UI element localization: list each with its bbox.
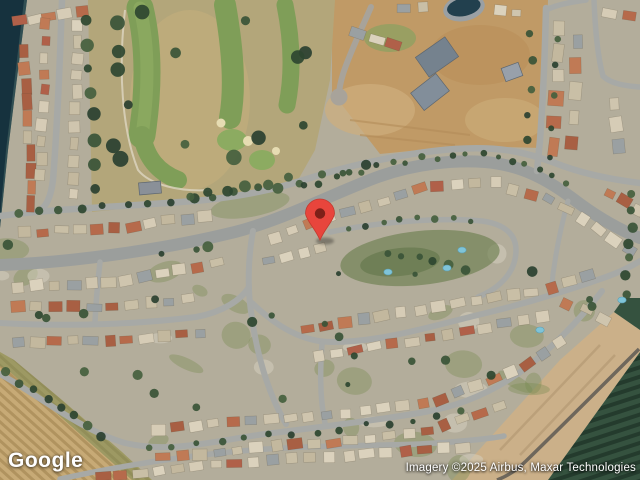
google-logo[interactable]: Google: [8, 449, 83, 473]
marker-inner-dot: [315, 208, 325, 218]
satellite-map[interactable]: Google Imagery ©2025 Airbus, Maxar Techn…: [0, 0, 640, 480]
marker-shadow: [316, 238, 334, 245]
satellite-imagery-layer: [0, 0, 640, 480]
map-attribution: Imagery ©2025 Airbus, Maxar Technologies: [406, 462, 636, 474]
